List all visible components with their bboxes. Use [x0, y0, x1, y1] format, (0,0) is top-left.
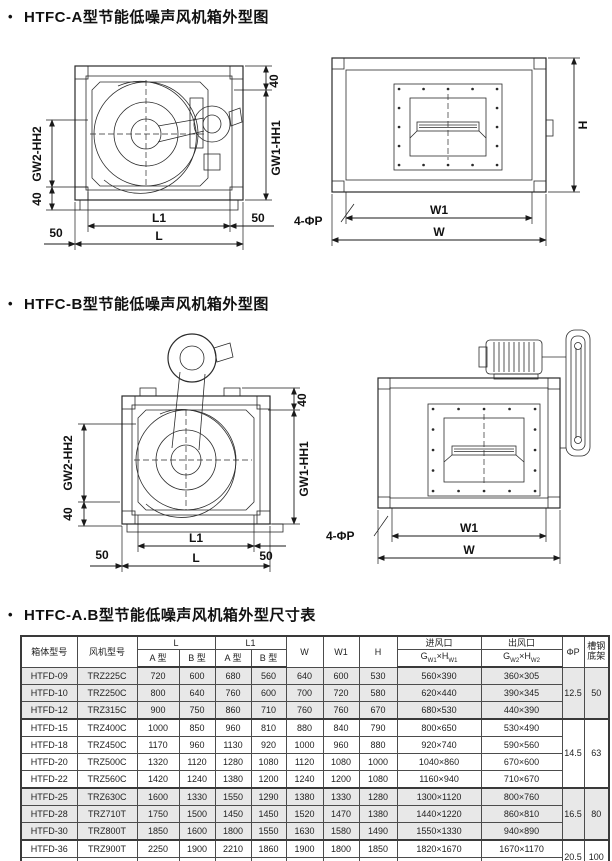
cell: 1080 [323, 754, 359, 771]
bullet-icon: • [8, 296, 24, 311]
cell: 1500 [179, 806, 215, 823]
cell: 1440×1220 [397, 806, 481, 823]
cell: 1550 [215, 788, 251, 806]
cell: 1240 [286, 771, 323, 789]
col-l1-type-a: A 型 [215, 650, 251, 667]
cell: HTFD-09 [21, 667, 77, 685]
cell-channel-group: 63 [584, 719, 609, 788]
cell: 1550 [251, 823, 286, 841]
cell: 1000 [137, 719, 179, 737]
cell: 2450 [137, 858, 179, 861]
table-body: HTFD-09TRZ225C720600680560640600530560×3… [21, 667, 609, 861]
cell: 800 [137, 685, 179, 702]
cell: 2000 [179, 858, 215, 861]
cell: 1630 [286, 823, 323, 841]
bullet-icon: • [8, 607, 24, 622]
htfc-b-side-view: 40 GW1-HH1 GW2-HH2 40 L1 L 50 50 [61, 334, 311, 572]
cell: 920 [251, 737, 286, 754]
cell: 700 [286, 685, 323, 702]
dim-w1: W1 [460, 521, 478, 535]
col-l-type-a: A 型 [137, 650, 179, 667]
cell: 530×490 [481, 719, 562, 737]
table-row: HTFD-28TRZ710T17501500145014501520147013… [21, 806, 609, 823]
cell: 1000 [359, 754, 397, 771]
cell: 670 [359, 702, 397, 720]
cell: 880 [359, 737, 397, 754]
cell: 790 [359, 719, 397, 737]
cell: 1580 [323, 823, 359, 841]
cell: 2250 [137, 840, 179, 858]
cell: TRZ630C [77, 788, 137, 806]
table-row: HTFD-22TRZ560C14201240138012001240120010… [21, 771, 609, 789]
dim-l1: L1 [152, 211, 166, 225]
cell: TRZ500C [77, 754, 137, 771]
cell: HTFD-30 [21, 823, 77, 841]
cell-phi-p-group: 12.5 [562, 667, 584, 719]
dim-l: L [192, 551, 199, 565]
dim-gw2-hh2: GW2-HH2 [30, 126, 44, 182]
dim-40-bottom-left: 40 [30, 192, 44, 206]
col-l1: L1 [215, 636, 286, 650]
col-w1: W1 [323, 636, 359, 667]
cell: 760 [286, 702, 323, 720]
dim-gw1-hh1: GW1-HH1 [269, 120, 283, 176]
cell-channel-group: 50 [584, 667, 609, 719]
col-w: W [286, 636, 323, 667]
table-row: HTFD-30TRZ800T18501600180015501630158014… [21, 823, 609, 841]
motor-b-side [168, 334, 233, 382]
dimension-table: 箱体型号 风机型号 L L1 W W1 H 进风口 出风口 ΦP 槽钢 底架 A… [20, 635, 610, 861]
cell: 1860 [251, 840, 286, 858]
cell: 620×440 [397, 685, 481, 702]
dim-40-top-right: 40 [267, 74, 281, 88]
cell: HTFD-18 [21, 737, 77, 754]
cell: 800×760 [481, 788, 562, 806]
col-outlet-size: GW2×HW2 [481, 650, 562, 667]
table-row: HTFD-09TRZ225C720600680560640600530560×3… [21, 667, 609, 685]
cell: 1800 [323, 840, 359, 858]
cell: 1200 [251, 771, 286, 789]
belt-guard [560, 330, 590, 456]
cell: 1800 [215, 823, 251, 841]
cell: HTFD-12 [21, 702, 77, 720]
col-outlet: 出风口 [481, 636, 562, 650]
cell: 750 [179, 702, 215, 720]
cell: 810 [251, 719, 286, 737]
htfc-b-front-view: W1 W 4-ΦP [326, 330, 590, 564]
cell: TRZ560C [77, 771, 137, 789]
cell: 710 [251, 702, 286, 720]
cell: 960 [215, 719, 251, 737]
cell: 920×740 [397, 737, 481, 754]
cell: 1900 [286, 840, 323, 858]
section-title-b-text: HTFC-B型节能低噪声风机箱外型图 [24, 296, 269, 313]
col-inlet-size: GW1×HW1 [397, 650, 481, 667]
cell: 1280 [359, 788, 397, 806]
cell: 1600 [179, 823, 215, 841]
cell: 360×305 [481, 667, 562, 685]
cell: 560×390 [397, 667, 481, 685]
table-row: HTFD-12TRZ315C900750860710760760670680×5… [21, 702, 609, 720]
cell: HTFD-22 [21, 771, 77, 789]
cell: 1160×940 [397, 771, 481, 789]
cell: 860×810 [481, 806, 562, 823]
cell: 850 [179, 719, 215, 737]
cell: 1080 [251, 754, 286, 771]
cell: 590×560 [481, 737, 562, 754]
table-row: HTFD-36TRZ900T22501900221018601900180018… [21, 840, 609, 858]
col-box-model: 箱体型号 [21, 636, 77, 667]
cell: 1200 [323, 771, 359, 789]
cell: 760 [323, 702, 359, 720]
cell: 2410 [215, 858, 251, 861]
cell: 1170 [137, 737, 179, 754]
cell: TRZ400C [77, 719, 137, 737]
cell: TRZ315C [77, 702, 137, 720]
cell: TRZ250C [77, 685, 137, 702]
col-l-type-b: B 型 [179, 650, 215, 667]
cell: 720 [137, 667, 179, 685]
col-inlet: 进风口 [397, 636, 481, 650]
col-phi-p: ΦP [562, 636, 584, 667]
dim-4-phi-p: 4-ΦP [294, 214, 323, 228]
dim-w: W [463, 543, 475, 557]
cell: 1120 [179, 754, 215, 771]
cell: 560 [251, 667, 286, 685]
cell: 1280 [215, 754, 251, 771]
htfc-a-side-view: 40 GW1-HH1 GW2-HH2 40 L1 L 50 50 [30, 66, 283, 250]
section-title-table: •HTFC-A.B型节能低噪声风机箱外型尺寸表 [8, 604, 316, 625]
inlet-g: G [421, 651, 428, 661]
htfc-a-front-view: H W1 W 4-ΦP [294, 58, 590, 246]
cell-channel-group: 100 [584, 840, 609, 861]
cell: HTFD-15 [21, 719, 77, 737]
cell: 710×670 [481, 771, 562, 789]
table-row: HTFD-18TRZ450C11709601130920100096088092… [21, 737, 609, 754]
dim-l1: L1 [189, 531, 203, 545]
dim-50-left: 50 [49, 226, 63, 240]
cell: 1450 [215, 806, 251, 823]
cell: 680×530 [397, 702, 481, 720]
cell: 640 [286, 667, 323, 685]
cell-channel-group: 80 [584, 788, 609, 840]
cell: 1600 [137, 788, 179, 806]
cell: 1300×1120 [397, 788, 481, 806]
cell: 390×345 [481, 685, 562, 702]
cell: 670×600 [481, 754, 562, 771]
table-row: HTFD-15TRZ400C1000850960810880840790800×… [21, 719, 609, 737]
cell: 680 [215, 667, 251, 685]
cell: 1820×1670 [397, 840, 481, 858]
cell: 2000 [286, 858, 323, 861]
cell: 840 [323, 719, 359, 737]
cell: 1670×1170 [481, 840, 562, 858]
cell-phi-p-group: 16.5 [562, 788, 584, 840]
cell: 1850 [359, 840, 397, 858]
cell-phi-p-group: 14.5 [562, 719, 584, 788]
cell: 2010 [359, 858, 397, 861]
cell: TRZ450C [77, 737, 137, 754]
outlet-sub2: W2 [531, 658, 540, 664]
cell: 580 [359, 685, 397, 702]
cell: 720 [323, 685, 359, 702]
cell: HTFD-20 [21, 754, 77, 771]
cell: 1900 [323, 858, 359, 861]
dim-w1: W1 [430, 203, 448, 217]
cell: 960 [179, 737, 215, 754]
cell: TRZ710T [77, 806, 137, 823]
cell: TRZ225C [77, 667, 137, 685]
dim-50-left: 50 [95, 548, 109, 562]
dim-50-right: 50 [259, 549, 273, 563]
inlet-sub2: W1 [448, 658, 457, 664]
cell: 960 [323, 737, 359, 754]
cell: 760 [215, 685, 251, 702]
col-h: H [359, 636, 397, 667]
cell: 880 [286, 719, 323, 737]
cell: 1490 [359, 823, 397, 841]
dim-gw1-hh1: GW1-HH1 [297, 441, 311, 497]
drawing-htfc-a: 40 GW1-HH1 GW2-HH2 40 L1 L 50 50 [0, 34, 612, 258]
cell: TRZ900T [77, 840, 137, 858]
table-row: HTFD-20TRZ500C13201120128010801120108010… [21, 754, 609, 771]
col-channel-base: 槽钢 底架 [584, 636, 609, 667]
section-title-a: •HTFC-A型节能低噪声风机箱外型图 [8, 6, 269, 27]
inlet-sub1: W1 [428, 658, 437, 664]
page: •HTFC-A型节能低噪声风机箱外型图 [0, 0, 612, 861]
cell: TRZ800T [77, 823, 137, 841]
dim-40-bottom-left: 40 [61, 507, 75, 521]
dim-gw2-hh2: GW2-HH2 [61, 435, 75, 491]
cell: 2210 [215, 840, 251, 858]
section-title-a-text: HTFC-A型节能低噪声风机箱外型图 [24, 9, 269, 26]
cell: 640 [179, 685, 215, 702]
cell: 600 [323, 667, 359, 685]
cell: 1960 [251, 858, 286, 861]
cell-phi-p-group: 20.5 [562, 840, 584, 861]
section-title-b: •HTFC-B型节能低噪声风机箱外型图 [8, 293, 269, 314]
dim-w: W [433, 225, 445, 239]
cell: 800×650 [397, 719, 481, 737]
cell: 1040×860 [397, 754, 481, 771]
table-row: HTFD-25TRZ630C16001330155012901380133012… [21, 788, 609, 806]
table-row: HTFD-10TRZ250C800640760600700720580620×4… [21, 685, 609, 702]
cell: 860 [215, 702, 251, 720]
dim-4-phi-p: 4-ΦP [326, 529, 355, 543]
cell: 1520 [286, 806, 323, 823]
cell: 1290 [251, 788, 286, 806]
cell: 440×390 [481, 702, 562, 720]
col-fan-model: 风机型号 [77, 636, 137, 667]
dim-40-top-right: 40 [295, 393, 309, 407]
cell: 1750 [137, 806, 179, 823]
cell: 1380 [359, 806, 397, 823]
cell: 1120 [286, 754, 323, 771]
cell: HTFD-36 [21, 840, 77, 858]
drawing-htfc-b: 40 GW1-HH1 GW2-HH2 40 L1 L 50 50 [0, 320, 612, 580]
cell: 1920×1830 [397, 858, 481, 861]
cell: 1320 [137, 754, 179, 771]
cell: 1380 [215, 771, 251, 789]
cell: 530 [359, 667, 397, 685]
dim-l: L [155, 229, 162, 243]
dim-50-right: 50 [251, 211, 265, 225]
cell: 1450 [251, 806, 286, 823]
cell: HTFD-40 [21, 858, 77, 861]
col-l1-type-b: B 型 [251, 650, 286, 667]
table-row: HTFD-40TRZ1000T2450200024101960200019002… [21, 858, 609, 861]
inlet-xh: ×H [437, 651, 449, 661]
col-l: L [137, 636, 215, 650]
cell: 600 [179, 667, 215, 685]
cell: 1380 [286, 788, 323, 806]
cell: 1330 [323, 788, 359, 806]
cell: 1130 [215, 737, 251, 754]
bullet-icon: • [8, 9, 24, 24]
cell: 1550×1330 [397, 823, 481, 841]
table-header: 箱体型号 风机型号 L L1 W W1 H 进风口 出风口 ΦP 槽钢 底架 A… [21, 636, 609, 667]
cell: 1000 [286, 737, 323, 754]
outlet-xh: ×H [519, 651, 531, 661]
cell: 1900 [179, 840, 215, 858]
cell: 940×890 [481, 823, 562, 841]
motor-b-front [479, 340, 566, 379]
cell: TRZ1000T [77, 858, 137, 861]
cell: 1240 [179, 771, 215, 789]
cell: HTFD-10 [21, 685, 77, 702]
cell: 1330 [179, 788, 215, 806]
cell: 1080 [359, 771, 397, 789]
cell: 1830×1310 [481, 858, 562, 861]
cell: 600 [251, 685, 286, 702]
cell: 1850 [137, 823, 179, 841]
cell: HTFD-25 [21, 788, 77, 806]
dim-h: H [576, 121, 590, 130]
outlet-sub1: W2 [510, 658, 519, 664]
section-title-table-text: HTFC-A.B型节能低噪声风机箱外型尺寸表 [24, 607, 316, 624]
cell: HTFD-28 [21, 806, 77, 823]
cell: 1420 [137, 771, 179, 789]
cell: 900 [137, 702, 179, 720]
cell: 1470 [323, 806, 359, 823]
